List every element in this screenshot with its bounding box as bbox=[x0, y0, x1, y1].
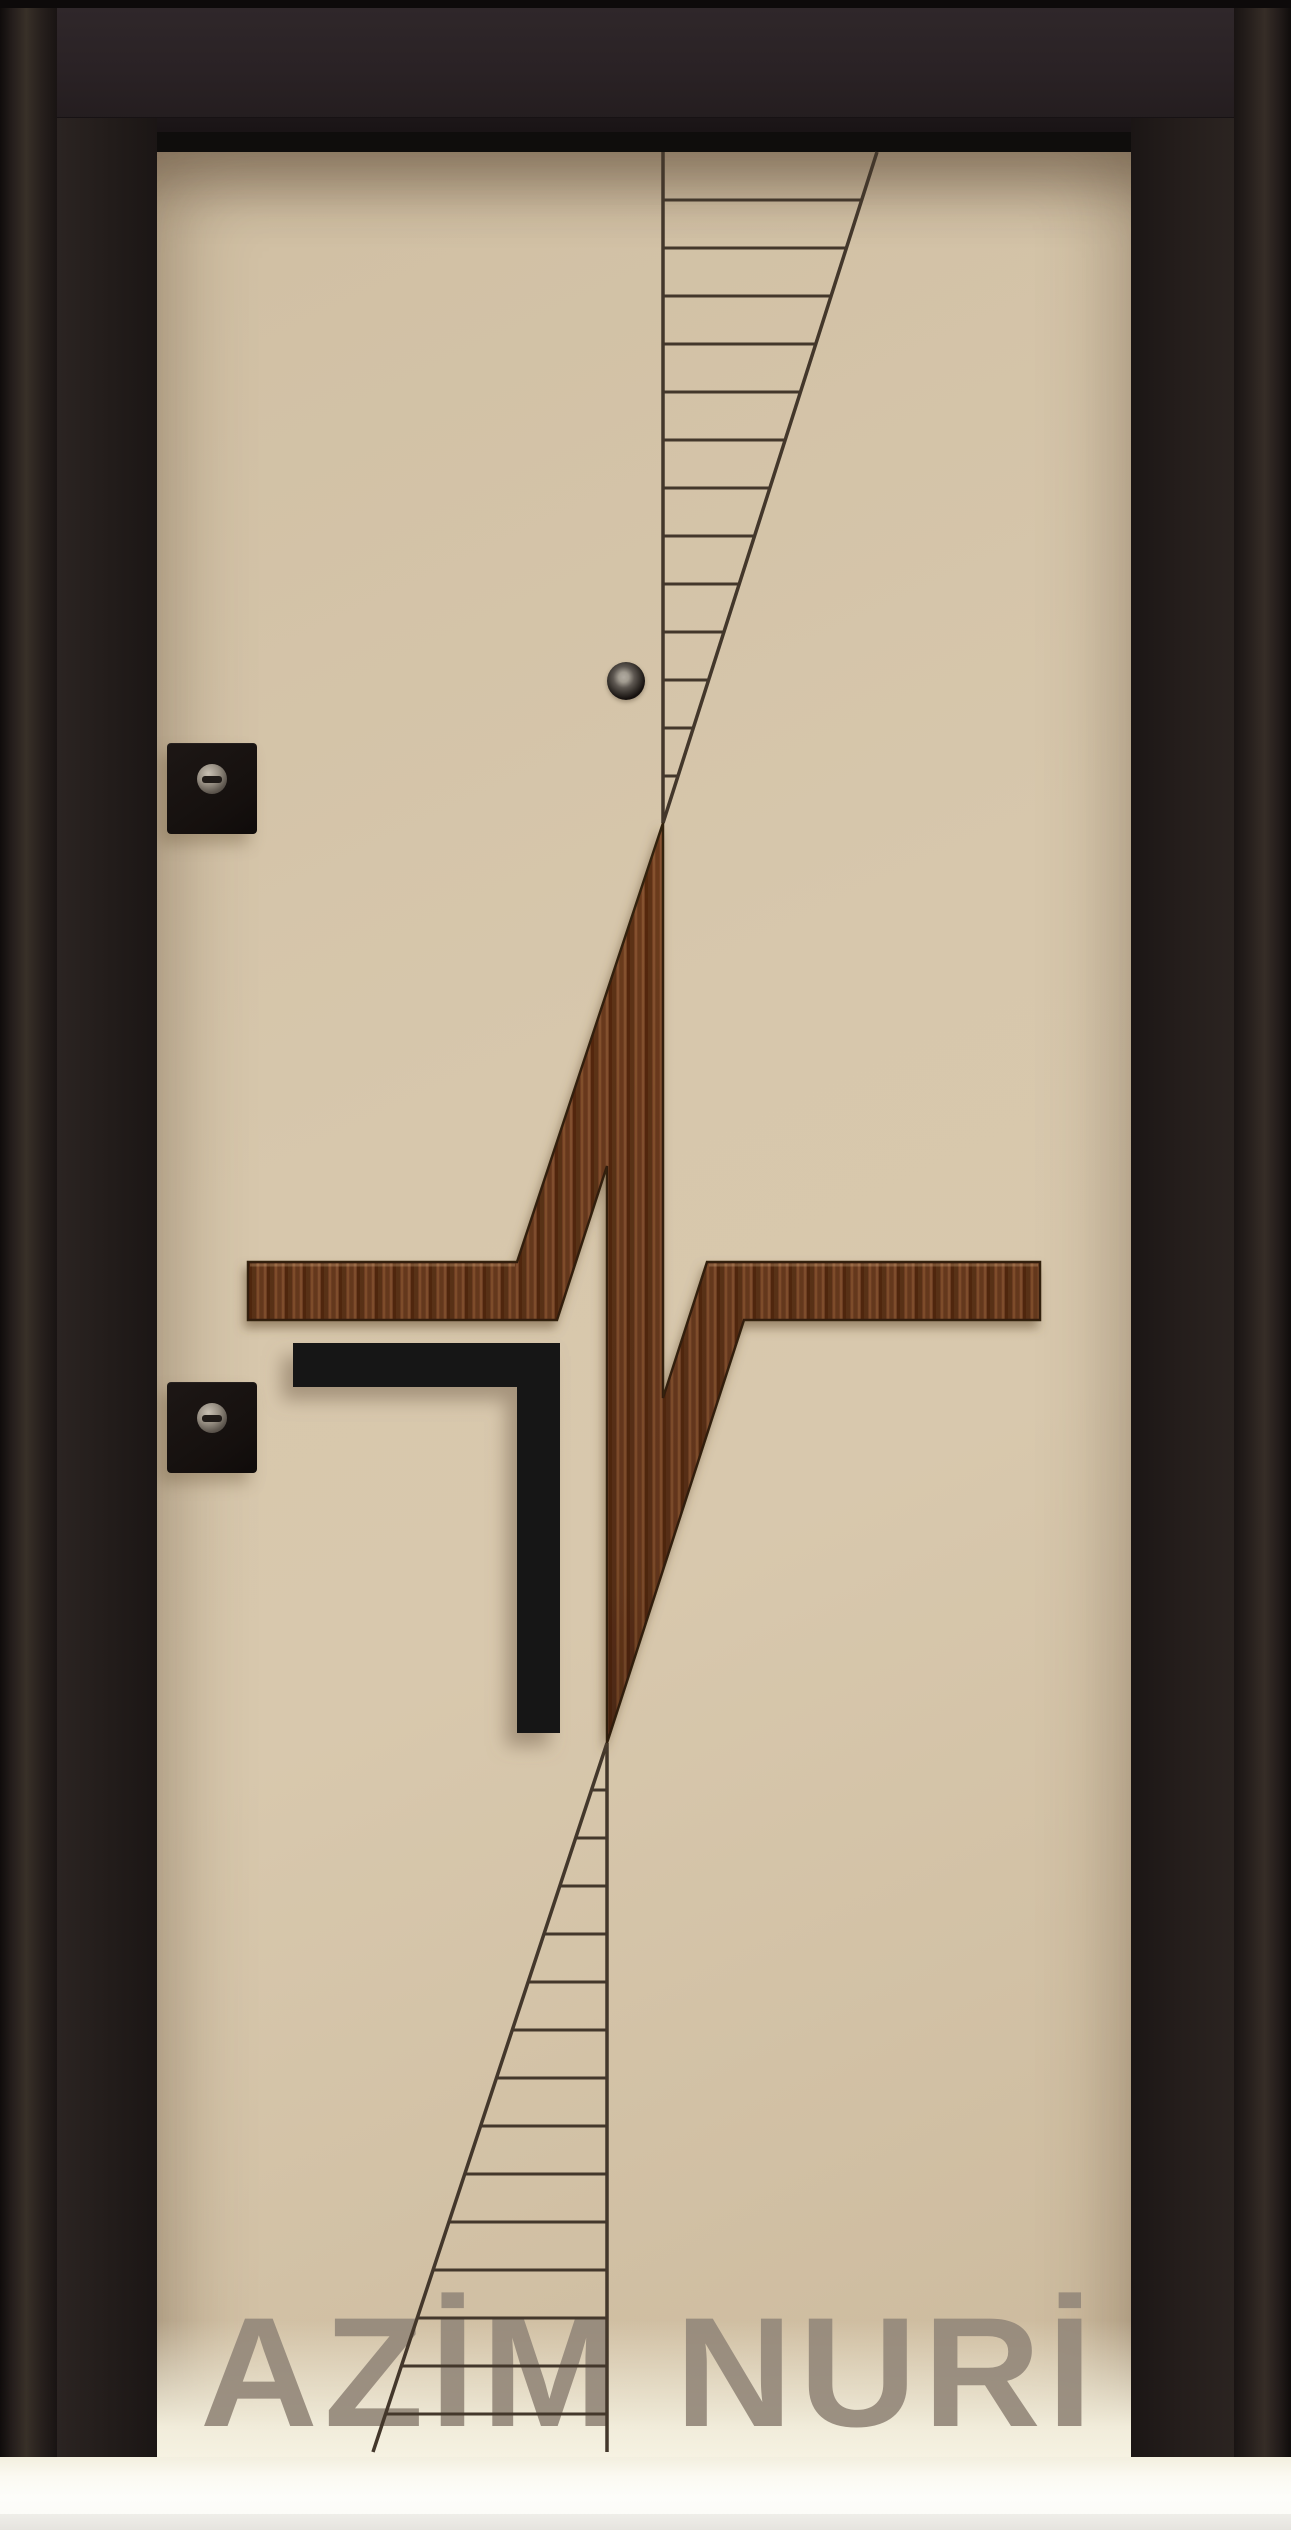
door-product-photo: AZİM NURİ bbox=[0, 0, 1291, 2530]
lower-keyhole-icon bbox=[197, 1403, 227, 1433]
frame-jamb-right-inner bbox=[1131, 118, 1234, 2514]
frame-jamb-right bbox=[1234, 8, 1291, 2514]
wood-pulse-inlay bbox=[248, 823, 1040, 1743]
frame-jamb-left-inner bbox=[57, 118, 157, 2514]
bottom-ladder-engraving bbox=[373, 1743, 607, 2452]
upper-lock bbox=[167, 743, 257, 834]
handle-bar-inlay bbox=[293, 1343, 560, 1733]
upper-keyhole-icon bbox=[197, 764, 227, 794]
floor-strip bbox=[0, 2514, 1291, 2530]
wood-pulse-shading bbox=[248, 823, 1040, 1743]
peephole-icon bbox=[607, 662, 645, 700]
lower-lock bbox=[167, 1382, 257, 1473]
frame-jamb-left bbox=[0, 8, 57, 2514]
top-ladder-engraving bbox=[663, 152, 877, 823]
door-artwork bbox=[0, 0, 1291, 2530]
